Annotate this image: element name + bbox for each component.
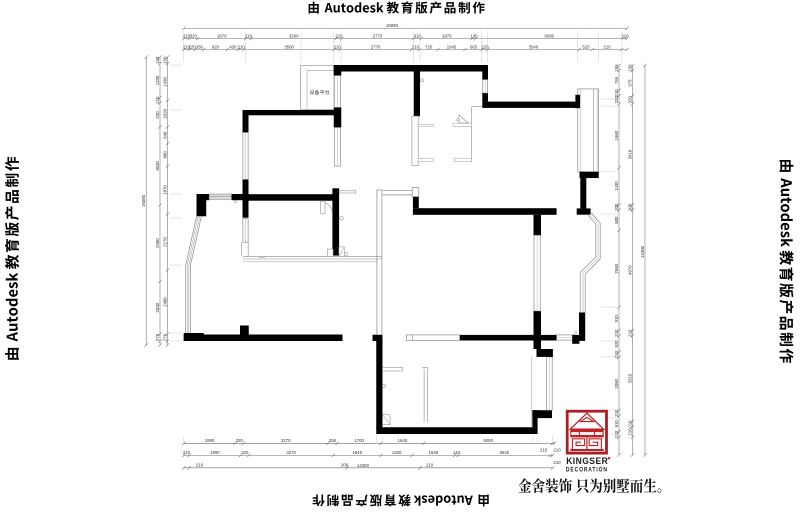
svg-text:195: 195	[627, 64, 632, 72]
svg-text:1990: 1990	[205, 438, 215, 443]
svg-text:210: 210	[540, 448, 548, 453]
svg-text:210: 210	[621, 33, 629, 38]
svg-text:3270: 3270	[281, 438, 291, 443]
svg-text:210: 210	[335, 33, 343, 38]
svg-text:210: 210	[604, 44, 612, 49]
svg-text:210: 210	[627, 420, 632, 428]
svg-text:2060: 2060	[614, 379, 619, 389]
svg-text:195: 195	[614, 64, 619, 72]
svg-text:1020: 1020	[162, 108, 167, 118]
svg-text:920: 920	[212, 44, 220, 49]
svg-text:320: 320	[190, 33, 198, 38]
svg-text:5090: 5090	[483, 438, 493, 443]
svg-text:880: 880	[162, 151, 167, 159]
svg-text:150: 150	[162, 56, 167, 64]
svg-text:2030: 2030	[155, 302, 160, 312]
svg-text:320: 320	[627, 96, 632, 104]
svg-text:320: 320	[241, 450, 249, 455]
svg-text:4670: 4670	[627, 265, 632, 275]
svg-text:720: 720	[425, 44, 433, 49]
svg-text:3500: 3500	[284, 44, 294, 49]
svg-text:610: 610	[614, 420, 619, 428]
svg-text:16090: 16090	[386, 23, 399, 28]
svg-text:320: 320	[614, 96, 619, 104]
svg-text:200: 200	[614, 203, 619, 211]
svg-text:6090: 6090	[545, 33, 555, 38]
svg-text:150: 150	[155, 56, 160, 64]
svg-text:1990: 1990	[210, 450, 220, 455]
svg-text:210: 210	[245, 33, 253, 38]
svg-text:1645: 1645	[398, 438, 408, 443]
svg-text:1870: 1870	[217, 33, 227, 38]
svg-text:1045: 1045	[447, 44, 457, 49]
svg-text:1700: 1700	[354, 438, 364, 443]
svg-text:14300: 14300	[640, 245, 645, 258]
svg-text:210: 210	[554, 460, 562, 465]
svg-text:210: 210	[481, 44, 489, 49]
svg-text:910: 910	[614, 315, 619, 323]
svg-text:930: 930	[155, 111, 160, 119]
svg-text:200: 200	[627, 203, 632, 211]
svg-text:3030: 3030	[155, 161, 160, 171]
svg-text:210: 210	[614, 89, 619, 97]
svg-text:DECORATION: DECORATION	[566, 467, 608, 474]
svg-text:1645: 1645	[429, 450, 439, 455]
svg-text:130: 130	[470, 33, 478, 38]
svg-text:310: 310	[412, 44, 420, 49]
svg-text:210: 210	[238, 44, 246, 49]
svg-text:210: 210	[614, 329, 619, 337]
svg-text:210: 210	[627, 329, 632, 337]
svg-text:210: 210	[183, 450, 191, 455]
svg-text:765: 765	[614, 76, 619, 84]
svg-text:3910: 3910	[627, 149, 632, 159]
svg-text:KINGSER: KINGSER	[566, 455, 608, 466]
svg-text:210: 210	[554, 448, 562, 453]
svg-text:2770: 2770	[373, 33, 383, 38]
svg-text:2960: 2960	[155, 238, 160, 248]
svg-text:6640: 6640	[500, 450, 510, 455]
svg-text:3310: 3310	[627, 373, 632, 383]
svg-text:140: 140	[453, 450, 461, 455]
svg-text:1430: 1430	[162, 77, 167, 87]
svg-text:1330: 1330	[155, 75, 160, 85]
svg-text:2480: 2480	[162, 297, 167, 307]
svg-text:975: 975	[627, 79, 632, 87]
svg-text:430: 430	[229, 44, 237, 49]
svg-text:520: 520	[582, 44, 590, 49]
svg-text:320: 320	[236, 438, 244, 443]
svg-text:14300: 14300	[357, 463, 370, 468]
svg-text:210: 210	[426, 463, 434, 468]
svg-text:310: 310	[414, 33, 422, 38]
svg-text:1430: 1430	[614, 181, 619, 191]
svg-text:2170: 2170	[162, 237, 167, 247]
svg-text:1870: 1870	[162, 185, 167, 195]
svg-text:270: 270	[162, 333, 167, 341]
svg-text:2770: 2770	[371, 44, 381, 49]
svg-text:330: 330	[196, 44, 204, 49]
svg-text:640: 640	[162, 131, 167, 139]
svg-text:3290: 3290	[289, 33, 299, 38]
svg-text:800: 800	[614, 216, 619, 224]
svg-text:210: 210	[196, 463, 204, 468]
svg-text:210: 210	[155, 96, 160, 104]
svg-text:1845: 1845	[352, 450, 362, 455]
svg-text:1200: 1200	[392, 450, 402, 455]
svg-text:355: 355	[329, 438, 337, 443]
svg-text:3270: 3270	[286, 450, 296, 455]
svg-text:1970: 1970	[442, 33, 452, 38]
svg-text:200: 200	[341, 463, 349, 468]
svg-text:3540: 3540	[529, 44, 539, 49]
svg-text:2460: 2460	[614, 130, 619, 140]
svg-text:210: 210	[627, 428, 632, 436]
svg-text:270: 270	[155, 333, 160, 341]
svg-text:16080: 16080	[141, 194, 146, 207]
svg-text:665: 665	[470, 44, 478, 49]
svg-text:210: 210	[334, 44, 342, 49]
svg-text:2960: 2960	[614, 263, 619, 273]
